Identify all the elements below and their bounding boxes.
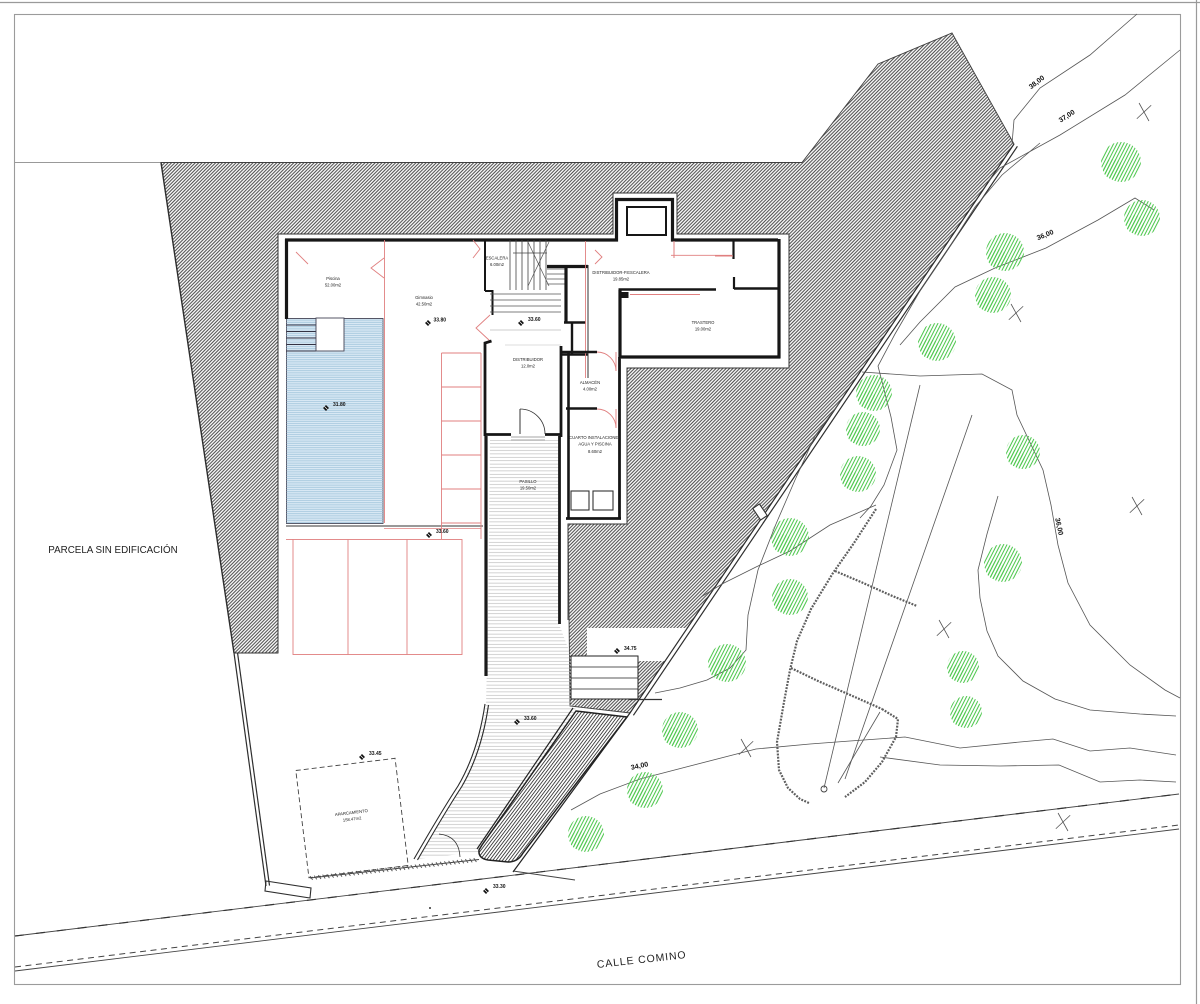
svg-text:33.60: 33.60 <box>528 317 541 323</box>
svg-text:12.0m2: 12.0m2 <box>521 364 536 369</box>
svg-text:ALMACÉN: ALMACÉN <box>580 380 600 385</box>
svg-text:DISTRIBUIDOR: DISTRIBUIDOR <box>513 357 543 362</box>
svg-text:19.00m2: 19.00m2 <box>695 327 712 332</box>
svg-text:19.50m2: 19.50m2 <box>520 486 537 491</box>
svg-text:CUARTO INSTALACIONES: CUARTO INSTALACIONES <box>569 435 621 440</box>
svg-text:ESCALERA: ESCALERA <box>486 256 509 261</box>
svg-text:4.00m2: 4.00m2 <box>583 387 598 392</box>
svg-text:DISTRIBUIDOR-P.ESCALERA: DISTRIBUIDOR-P.ESCALERA <box>592 270 649 275</box>
svg-text:PARCELA SIN EDIFICACIÓN: PARCELA SIN EDIFICACIÓN <box>48 545 177 556</box>
svg-text:PASILLO: PASILLO <box>519 479 537 484</box>
svg-text:34.75: 34.75 <box>624 646 637 652</box>
svg-text:TRASTERO: TRASTERO <box>692 320 716 325</box>
svg-text:19.85m2: 19.85m2 <box>613 277 630 282</box>
svg-text:33.60: 33.60 <box>524 716 537 722</box>
svg-text:33.45: 33.45 <box>369 751 382 757</box>
svg-text:52.00m2: 52.00m2 <box>325 283 342 288</box>
svg-text:33.80: 33.80 <box>434 318 447 324</box>
svg-text:Piscina: Piscina <box>326 276 340 281</box>
svg-text:8.60m2: 8.60m2 <box>588 449 603 454</box>
svg-text:6.00m2: 6.00m2 <box>490 262 505 267</box>
svg-text:33.30: 33.30 <box>493 884 506 890</box>
svg-text:Gimnasio: Gimnasio <box>415 295 433 300</box>
svg-text:42.50m2: 42.50m2 <box>416 302 433 307</box>
svg-text:33.60: 33.60 <box>436 529 449 535</box>
svg-text:AGUA Y PISCINA: AGUA Y PISCINA <box>578 442 612 447</box>
svg-text:31.80: 31.80 <box>333 402 346 408</box>
